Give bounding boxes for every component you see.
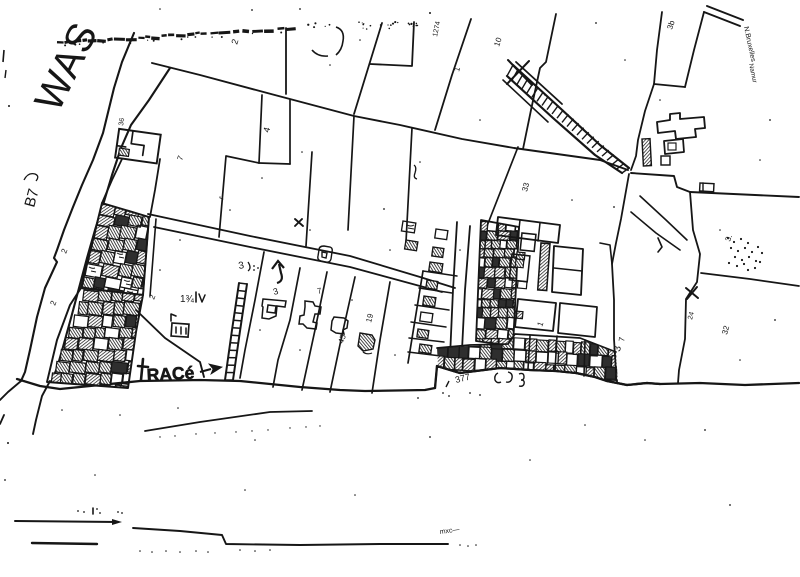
svg-text:1¾: 1¾ [180, 294, 195, 305]
svg-text:RACé: RACé [146, 363, 195, 385]
svg-text:36: 36 [118, 117, 126, 126]
